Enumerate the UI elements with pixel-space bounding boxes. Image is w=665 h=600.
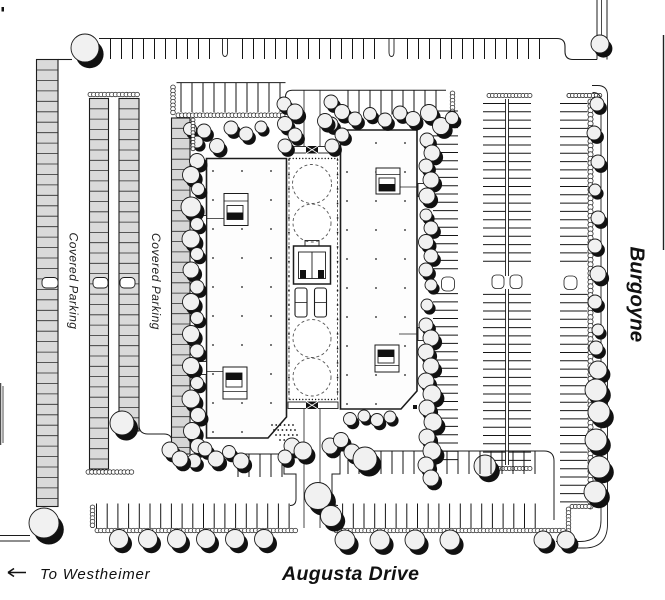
svg-text:Covered Parking: Covered Parking — [149, 233, 163, 330]
svg-text:Augusta Drive: Augusta Drive — [281, 563, 419, 585]
svg-text:Burgoyne: Burgoyne — [626, 247, 649, 343]
svg-text:Covered Parking: Covered Parking — [67, 233, 81, 330]
svg-text:To Westheimer: To Westheimer — [40, 566, 151, 583]
